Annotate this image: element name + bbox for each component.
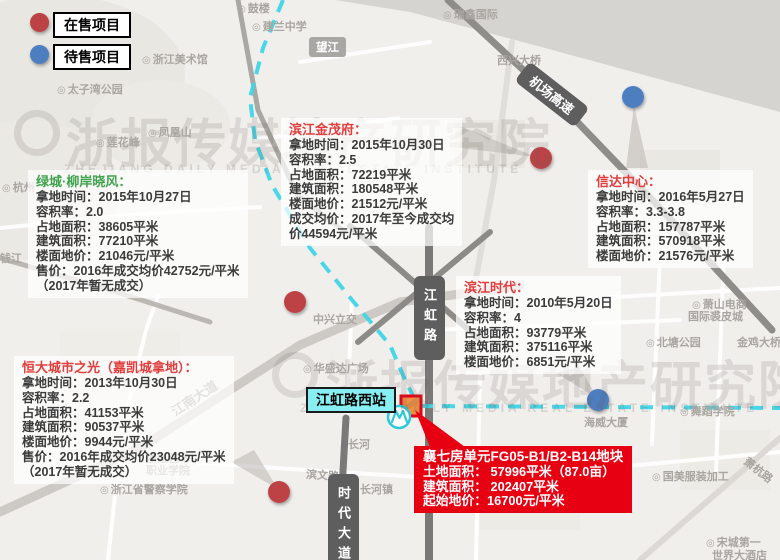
info-line: 容积率：2.5 (289, 153, 454, 168)
project-title: 绿城·柳岸晓风： (36, 174, 240, 190)
info-line: 楼面地价：21576元/平米 (596, 249, 745, 264)
project-title: 滨江金茂府： (289, 122, 454, 138)
onsale-legend-icon (30, 13, 49, 32)
legend-label-pending: 待售项目 (53, 44, 131, 70)
info-line: 价44594元/平米 (289, 227, 454, 242)
info-line: 占地面积：41153平米 (22, 406, 226, 421)
info-line: 容积率：2.2 (22, 391, 226, 406)
project-block-binjiang-shidai: 滨江时代： 拿地时间：2010年5月20日容积率：4占地面积：93779平米建筑… (456, 276, 621, 374)
info-line: 楼面地价：21512元/平米 (289, 197, 454, 212)
info-line: （2017年暂无成交） (22, 465, 226, 480)
info-line: 楼面地价：21046元/平米 (36, 249, 240, 264)
onsale-marker (284, 291, 306, 313)
info-line: 占地面积：93779平米 (464, 326, 613, 341)
info-line: 拿地时间：2010年5月20日 (464, 296, 613, 311)
project-block-xinda: 信达中心： 拿地时间：2016年5月27日容积率：3.3-3.8占地面积：157… (588, 170, 753, 268)
info-line: 容积率：3.3-3.8 (596, 205, 745, 220)
info-line: 建筑面积：375116平米 (464, 340, 613, 355)
info-line: 起始地价：16700元/平米 (423, 494, 623, 509)
project-title: 滨江时代： (464, 280, 613, 296)
road-label-shidai-avenue: 时代大道 (328, 474, 359, 560)
pending-marker (622, 86, 644, 108)
project-title: 信达中心： (596, 174, 745, 190)
plot-callout-title: 襄七房单元FG05-B1/B2-B14地块 (423, 450, 623, 465)
info-line: 拿地时间：2015年10月30日 (289, 138, 454, 153)
info-line: 成交均价：2017年至今成交均 (289, 212, 454, 227)
info-line: 拿地时间：2015年10月27日 (36, 190, 240, 205)
plot-callout-box: 襄七房单元FG05-B1/B2-B14地块 土地面积： 57996平米（87.0… (414, 446, 632, 513)
info-line: 拿地时间：2013年10月30日 (22, 376, 226, 391)
info-line: 容积率：2.0 (36, 205, 240, 220)
info-line: 建筑面积：77210平米 (36, 234, 240, 249)
project-title: 恒大城市之光（嘉凯城拿地）： (22, 360, 226, 376)
info-line: 土地面积： 57996平米（87.0亩） (423, 465, 623, 480)
info-line: 建筑面积：90537平米 (22, 420, 226, 435)
info-line: 建筑面积： 202407平米 (423, 480, 623, 495)
info-line: （2017年暂无成交） (36, 279, 240, 294)
info-line: 楼面地价：9944元/平米 (22, 435, 226, 450)
pending-legend-icon (30, 45, 49, 64)
project-block-jinmaofu: 滨江金茂府： 拿地时间：2015年10月30日容积率：2.5占地面积：72219… (281, 118, 462, 246)
info-line: 售价：2016年成交均价23048元/平米 (22, 450, 226, 465)
info-line: 建筑面积：180548平米 (289, 182, 454, 197)
info-line: 容积率：4 (464, 311, 613, 326)
info-line: 拿地时间：2016年5月27日 (596, 190, 745, 205)
road-label-wangjiang: 望江 (309, 37, 346, 57)
station-label: 江虹路西站 (306, 387, 396, 413)
legend-label-onsale: 在售项目 (53, 12, 131, 38)
project-block-hengda: 恒大城市之光（嘉凯城拿地）： 拿地时间：2013年10月30日容积率：2.2占地… (14, 356, 234, 484)
info-line: 建筑面积：570918平米 (596, 234, 745, 249)
project-block-lvcheng: 绿城·柳岸晓风： 拿地时间：2015年10月27日容积率：2.0占地面积：386… (28, 170, 248, 298)
info-line: 售价：2016年成交均价42752元/平米 (36, 264, 240, 279)
road-label-jianghong-road: 江虹路 (414, 276, 445, 360)
info-line: 占地面积：72219平米 (289, 168, 454, 183)
info-line: 占地面积：38605平米 (36, 220, 240, 235)
info-line: 占地面积：157787平米 (596, 220, 745, 235)
onsale-marker (268, 481, 290, 503)
watermark-logo-icon (14, 110, 60, 156)
info-line: 楼面地价：6851元/平米 (464, 355, 613, 370)
map-canvas[interactable]: 浙报传媒地产研究院 ZHEJIANG DAILY MEDIA REAL ESTA… (0, 0, 780, 560)
